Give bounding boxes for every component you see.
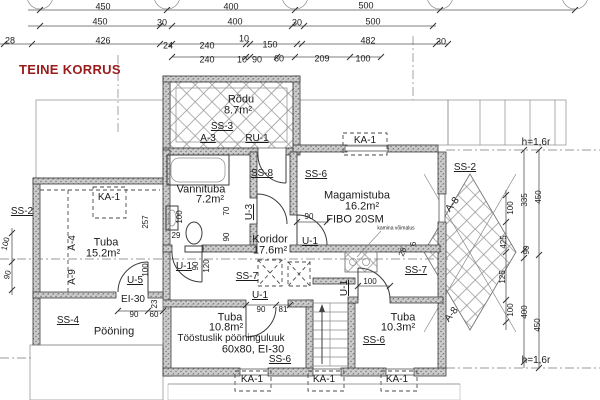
label-u-1: U-1: [252, 291, 268, 301]
label-426: 426: [95, 37, 110, 46]
label-400: 400: [521, 305, 529, 318]
label-150: 150: [262, 41, 277, 50]
label-425: 425: [500, 235, 508, 248]
floor-plan-drawing: [0, 0, 600, 400]
label-10-8m-: 10.8m²: [209, 323, 243, 334]
label-400: 400: [223, 3, 238, 12]
label-ss-8: SS-8: [251, 169, 273, 179]
label-u-1: U-1: [340, 280, 350, 296]
label-6: 6: [410, 242, 418, 246]
label-ss-6: SS-6: [269, 355, 291, 365]
label-ss-7: SS-7: [236, 272, 258, 282]
label-u-3: U-3: [245, 204, 255, 220]
label-30: 30: [292, 19, 302, 28]
label-10-3m-: 10.3m²: [381, 323, 415, 334]
label-h-1-6r: h=1,6r: [522, 356, 551, 366]
label-ka-1: KA-1: [241, 375, 263, 385]
label-ka-1: KA-1: [354, 136, 376, 146]
label-100: 100: [363, 278, 376, 286]
label-400: 400: [227, 18, 242, 27]
floor-plan-page: TEINE KORRUS 450400500450304003050028426…: [0, 0, 600, 400]
label-ei-30: EI-30: [121, 295, 145, 305]
label-500: 500: [365, 18, 380, 27]
label-ss-7: SS-7: [405, 266, 427, 276]
label-240: 240: [199, 42, 214, 51]
label-450: 450: [535, 190, 543, 203]
label-482: 482: [360, 37, 375, 46]
bathtub: [167, 155, 229, 185]
label-ka-1: KA-1: [386, 375, 408, 385]
label-a-9: A-9: [68, 269, 78, 285]
label-ka-1: KA-1: [98, 193, 120, 203]
label-90: 90: [192, 262, 200, 271]
label-90: 90: [130, 311, 139, 319]
label-90: 90: [523, 246, 531, 255]
label-70: 70: [223, 207, 231, 216]
toilet: [186, 222, 202, 244]
label-240: 240: [199, 56, 214, 65]
label-335: 335: [521, 193, 529, 206]
label-100: 100: [507, 303, 515, 316]
label-120: 120: [203, 259, 211, 272]
label-28: 28: [5, 37, 15, 46]
label-450: 450: [92, 18, 107, 27]
label-u-5: U-5: [127, 276, 143, 286]
label-90: 90: [223, 233, 231, 242]
label-ss-2: SS-2: [454, 163, 476, 173]
label-a-3: A-3: [200, 134, 216, 144]
page-title: TEINE KORRUS: [19, 62, 121, 77]
label-125: 125: [499, 270, 507, 283]
label-90: 90: [257, 306, 266, 314]
label-90: 90: [252, 56, 262, 65]
label-100: 100: [507, 201, 515, 214]
label-t-stuslik-p-ninguluuk: Tööstuslik pööninguluuk: [177, 334, 284, 344]
label-100: 100: [355, 55, 370, 64]
label-100: 100: [142, 263, 150, 276]
label-60: 60: [274, 55, 284, 64]
label-h-1-6r: h=1,6r: [522, 138, 551, 148]
label-10: 10: [239, 35, 249, 44]
label-81: 81: [279, 306, 288, 314]
label-7-2m-: 7.2m²: [196, 195, 224, 206]
grid-bubbles: [27, 0, 588, 9]
label-209: 209: [314, 55, 329, 64]
label-17-6m-: 17.6m²: [253, 246, 287, 257]
label-ss-4: SS-4: [57, 316, 79, 326]
label-a-4: A-4: [68, 235, 78, 251]
label-30: 30: [436, 38, 446, 47]
label-23: 23: [151, 300, 159, 309]
label-30: 30: [157, 19, 167, 28]
label-100: 100: [176, 210, 184, 223]
label-24: 24: [163, 42, 173, 51]
label-8-7m-: 8.7m²: [224, 106, 252, 117]
label-ka-1: KA-1: [313, 375, 335, 385]
label-fibo-20sm: FIBO 20SM: [326, 215, 383, 226]
label-450: 450: [95, 3, 110, 12]
label-ss-6: SS-6: [305, 170, 327, 180]
label-500: 500: [358, 2, 373, 11]
stair-direction-arrow: [319, 304, 325, 312]
label-10: 10: [237, 56, 247, 65]
label-16-2m-: 16.2m²: [345, 202, 379, 213]
label-ru-1: RU-1: [245, 134, 268, 144]
label-ss-2: SS-2: [11, 207, 33, 217]
label-u-1: U-1: [176, 262, 192, 272]
stairs: [313, 303, 348, 366]
label-ss-3: SS-3: [211, 122, 233, 132]
room-pooning: Pööning: [94, 327, 134, 338]
label-450: 450: [534, 318, 542, 331]
label-29: 29: [172, 232, 181, 240]
label-u-1: U-1: [302, 237, 318, 247]
label-15-2m-: 15.2m²: [86, 249, 120, 260]
label-kamina-v-imalus: kamina võimalus: [377, 227, 414, 232]
label-90: 90: [305, 213, 314, 221]
label-ss-6: SS-6: [363, 336, 385, 346]
label-257: 257: [142, 215, 150, 228]
label-60: 60: [150, 311, 159, 319]
